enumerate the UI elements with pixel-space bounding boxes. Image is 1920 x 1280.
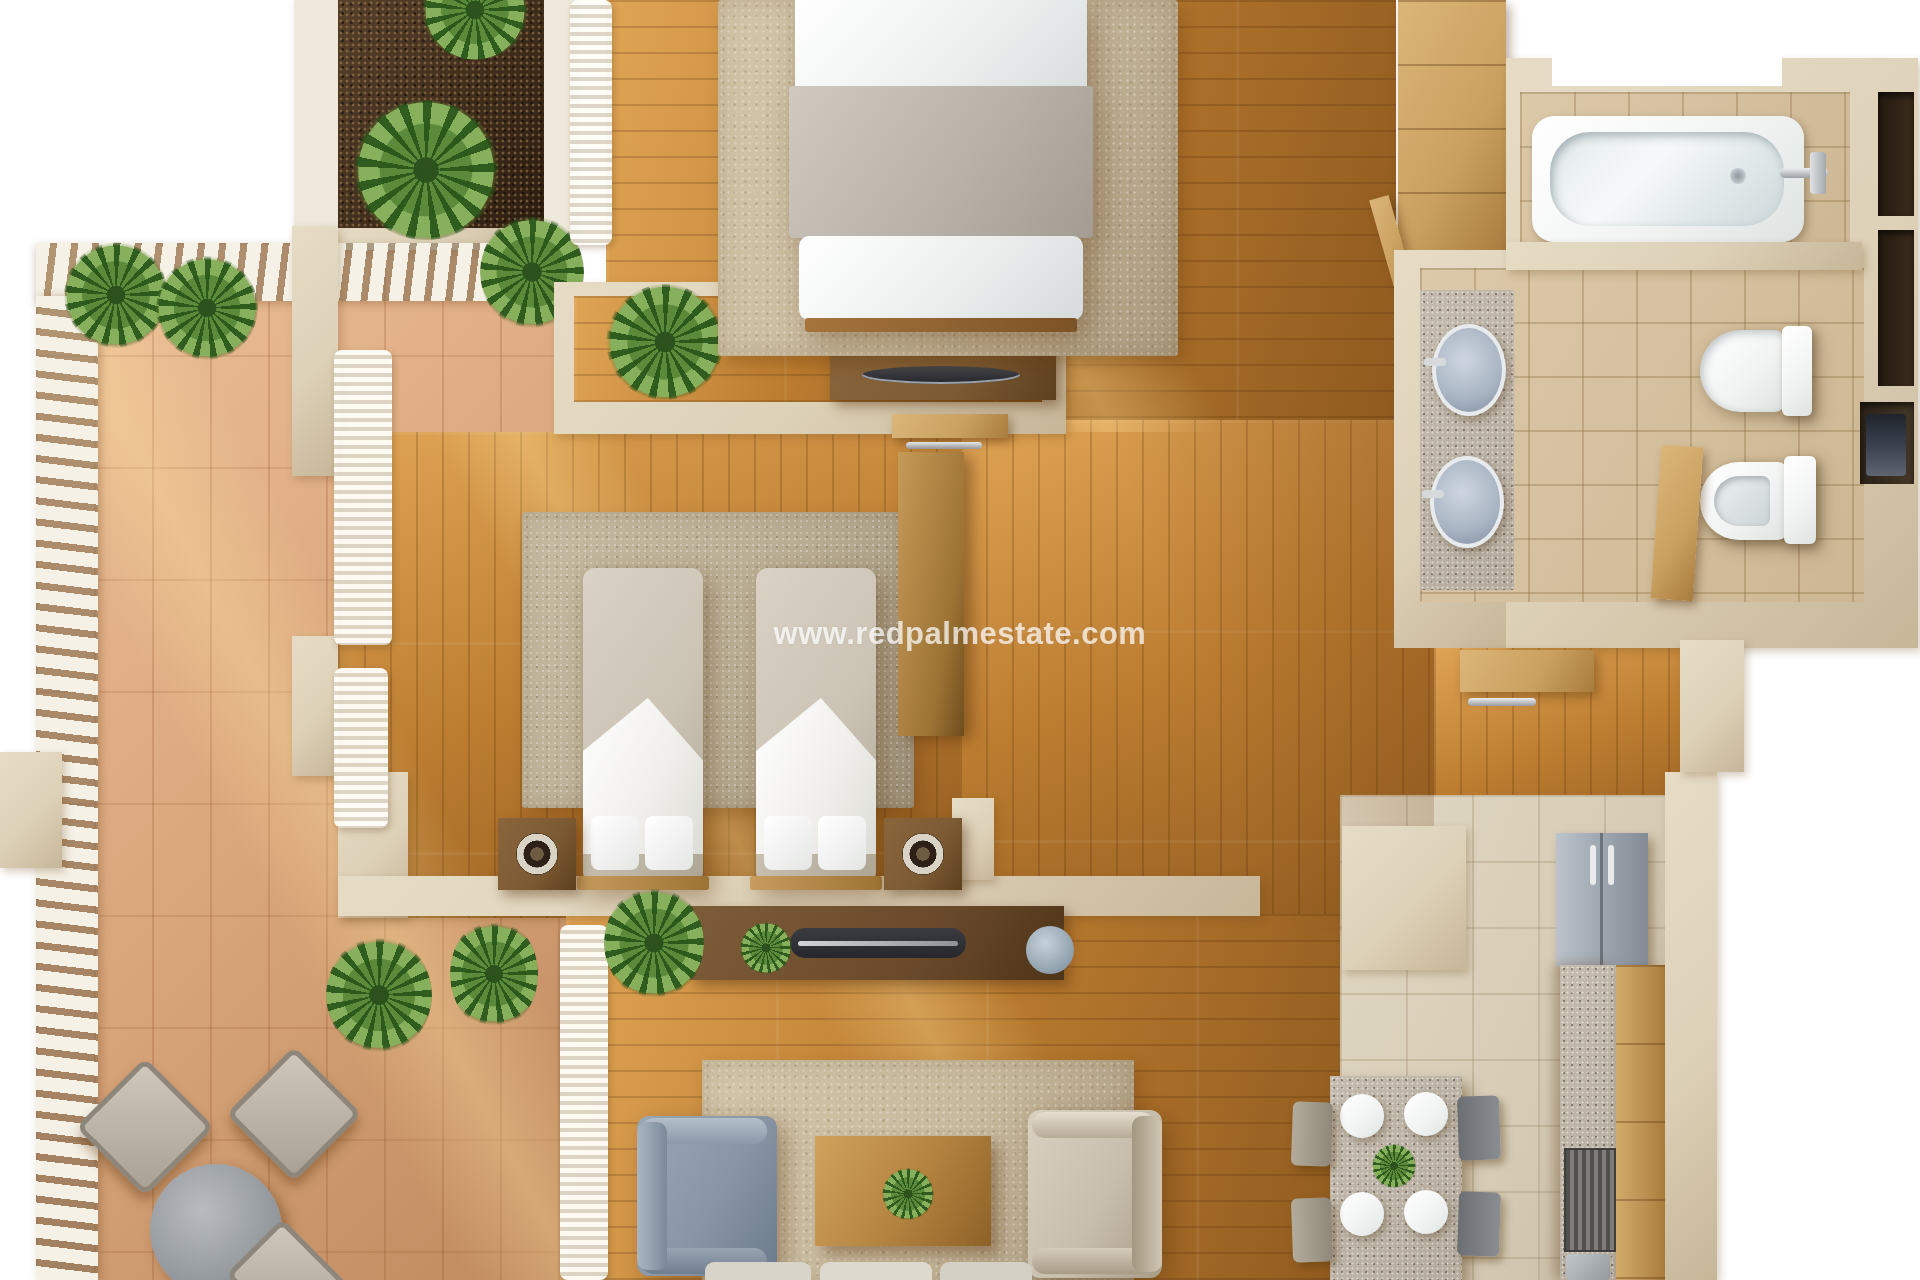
- armchair-right-back: [1132, 1116, 1162, 1272]
- twin-bed-left-pillow-1: [591, 816, 639, 870]
- bathtub-drain-icon: [1730, 168, 1746, 184]
- planter-wall-left: [294, 0, 338, 250]
- fridge-handle-2: [1608, 845, 1614, 885]
- planter-wall-right: [544, 0, 572, 250]
- plate-2-icon: [1404, 1092, 1448, 1136]
- washbasin-1-icon: [1432, 324, 1506, 416]
- exterior-notch-top: [1552, 0, 1782, 86]
- terrace-palm-5-icon: [450, 918, 538, 1030]
- wardrobe: [1398, 0, 1506, 255]
- bathtub: [1532, 116, 1804, 242]
- curtain-bedroom2-lower: [334, 668, 388, 828]
- bedroom2-shelf-rail: [906, 442, 982, 449]
- sofa-cushion-3: [940, 1262, 1032, 1280]
- planter-plant-main-icon: [352, 100, 500, 240]
- kitchen-right-wall: [1665, 772, 1717, 1280]
- master-bed-duvet: [789, 86, 1093, 238]
- kitchen-sink-icon: [1566, 1254, 1610, 1280]
- terrace-palm-2-icon: [156, 256, 258, 360]
- bidet-tank: [1784, 456, 1816, 544]
- terrace-palm-1-icon: [64, 242, 168, 348]
- washbasin-2-faucet-icon: [1422, 490, 1444, 498]
- washbasin-1-faucet-icon: [1424, 358, 1446, 366]
- fridge-icon: [1556, 833, 1648, 967]
- wall-niche-2: [1878, 230, 1914, 386]
- fridge-door-split: [1600, 833, 1603, 967]
- ac-unit: [0, 752, 62, 868]
- nightstand-right-speaker-icon: [902, 833, 944, 875]
- entry-rail-icon: [1468, 698, 1536, 706]
- coffee-table-plant-icon: [882, 1168, 934, 1220]
- dining-chair-4: [1457, 1191, 1501, 1256]
- bidet-basin: [1714, 476, 1770, 526]
- master-bed-pillows: [795, 0, 1087, 88]
- armchair-right: [1028, 1110, 1162, 1278]
- console-plant-icon: [740, 922, 792, 974]
- bidet: [1700, 462, 1816, 540]
- plate-1-icon: [1340, 1094, 1384, 1138]
- curtain-living-left: [560, 925, 608, 1280]
- laundry-unit-icon: [1866, 414, 1906, 476]
- twin-bed-right-pillow-1: [764, 816, 812, 870]
- master-fern-icon: [606, 284, 724, 400]
- sofa-cushion-2: [820, 1262, 932, 1280]
- sofa-cushion-1: [705, 1262, 811, 1280]
- master-bed-frame: [805, 318, 1077, 332]
- kitchen-island: [1342, 826, 1466, 970]
- dining-chair-2: [1291, 1197, 1333, 1262]
- kitchen-counter-cabinets: [1616, 965, 1666, 1280]
- master-tv-icon: [862, 366, 1020, 384]
- toilet-tank: [1782, 326, 1812, 416]
- floor-plan: www.redpalmestate.com: [0, 0, 1920, 1280]
- entry-landing: [1680, 640, 1744, 772]
- master-bed: [795, 0, 1087, 335]
- toilet: [1700, 330, 1812, 412]
- dining-chair-3: [1457, 1095, 1501, 1160]
- soundbar-trim: [798, 941, 958, 946]
- nightstand-left: [498, 818, 576, 890]
- curtain-bedroom2-upper: [334, 350, 392, 645]
- bedroom2-shelf: [892, 414, 1008, 438]
- plate-4-icon: [1404, 1190, 1448, 1234]
- entry-bench: [1460, 650, 1594, 692]
- fridge-handle-1: [1590, 845, 1596, 885]
- bathtub-faucet-cross-icon: [1810, 152, 1826, 194]
- washbasin-2-icon: [1430, 456, 1504, 548]
- bathtub-basin: [1550, 132, 1784, 226]
- wall-niche-1: [1878, 92, 1914, 216]
- soundbar-icon: [790, 928, 966, 958]
- plate-3-icon: [1340, 1192, 1384, 1236]
- dining-centerpiece-icon: [1372, 1144, 1416, 1188]
- terrace-palm-4-icon: [326, 936, 432, 1054]
- dining-chair-1: [1291, 1101, 1333, 1166]
- twin-bed-left-pillow-2: [645, 816, 693, 870]
- master-bed-mattress-fold: [799, 236, 1083, 320]
- toilet-bowl: [1700, 330, 1786, 412]
- armchair-left-back: [637, 1122, 667, 1270]
- bedroom2-wardrobe-panel: [898, 452, 964, 736]
- twin-bed-right-foot-frame: [750, 876, 882, 890]
- living-fern-icon: [604, 886, 704, 1000]
- curtain-master-left: [570, 0, 612, 245]
- bathtub-ledge: [1506, 242, 1862, 270]
- watermark: www.redpalmestate.com: [774, 616, 1147, 652]
- twin-bed-left: [583, 568, 703, 884]
- nightstand-right: [884, 818, 962, 890]
- nightstand-left-speaker-icon: [516, 833, 558, 875]
- wall-terrace-pier: [292, 636, 338, 776]
- console-dish-icon: [1026, 926, 1074, 974]
- wall-terrace-upper: [292, 226, 338, 476]
- armchair-left: [637, 1116, 777, 1276]
- stove-icon: [1564, 1148, 1616, 1252]
- twin-bed-right-pillow-2: [818, 816, 866, 870]
